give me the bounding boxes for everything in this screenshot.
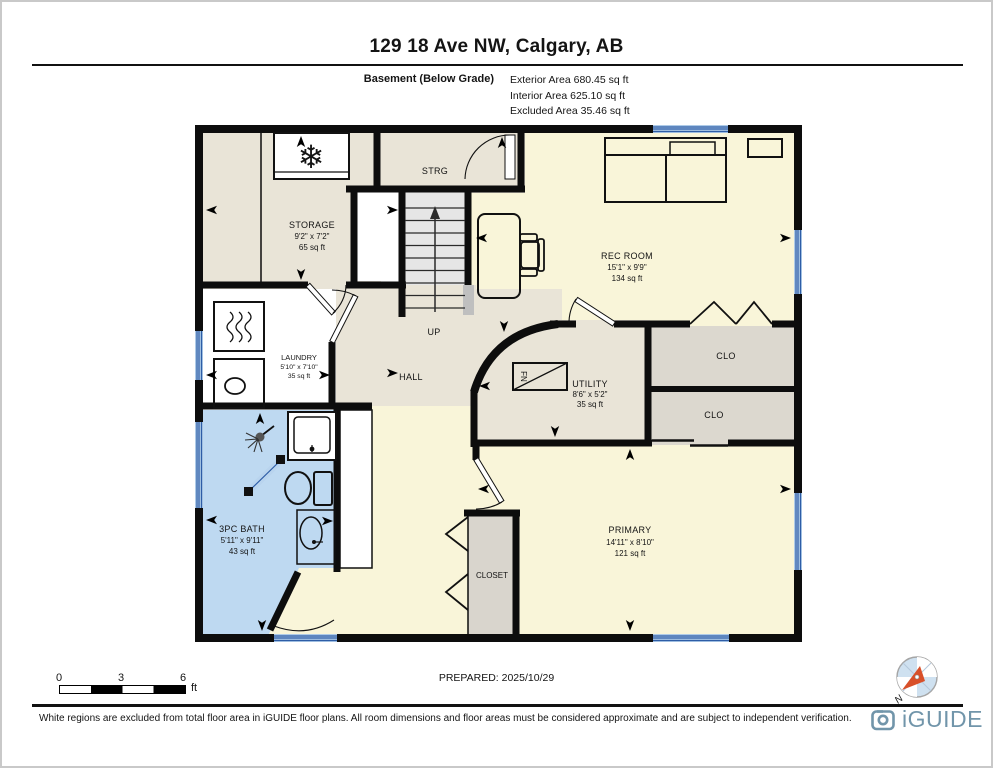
iguide-logo-text: iGUIDE (902, 706, 983, 733)
window-left-bath (195, 422, 203, 508)
prepared-date: PREPARED: 2025/10/29 (2, 672, 991, 684)
area-stats: Exterior Area 680.45 sq ft Interior Area… (510, 73, 630, 120)
room-label-clo-upper: CLO (716, 351, 735, 361)
stair-landing-block (463, 285, 474, 315)
footer-divider (32, 704, 963, 707)
furnace-label: FN (519, 371, 528, 382)
room-dims-primary: 14'11" x 8'10" (606, 538, 654, 547)
room-label-closet: CLOSET (476, 571, 508, 580)
room-label-hall: HALL (399, 372, 423, 382)
room-fills (199, 129, 798, 638)
floor-name: Basement (Below Grade) (364, 73, 494, 85)
room-label-strg: STRG (422, 166, 448, 176)
window-right-primary (794, 493, 802, 570)
room-dims-rec-room: 15'1" x 9'9" (607, 263, 647, 272)
room-dims-storage: 9'2" x 7'2" (295, 232, 330, 241)
page-title: 129 18 Ave NW, Calgary, AB (2, 36, 991, 58)
room-area-bath: 43 sq ft (229, 547, 256, 556)
room-area-utility: 35 sq ft (577, 400, 604, 409)
room-dims-laundry: 5'10" x 7'10" (280, 364, 318, 371)
freezer: ❄ (274, 133, 349, 179)
iguide-logo-icon (870, 708, 897, 732)
window-bottom-primary (653, 634, 729, 642)
disclaimer-text: White regions are excluded from total fl… (39, 713, 852, 724)
room-label-up: UP (427, 327, 440, 337)
header-divider (32, 64, 963, 66)
furnace: FN (513, 363, 567, 390)
room-area-rec-room: 134 sq ft (612, 274, 643, 283)
room-label-primary: PRIMARY (609, 525, 652, 535)
room-area-primary: 121 sq ft (615, 549, 646, 558)
room-dims-bath: 5'11" x 9'11" (221, 536, 264, 545)
room-area-storage: 65 sq ft (299, 243, 326, 252)
compass: N (889, 652, 945, 708)
room-label-storage: STORAGE (289, 220, 335, 230)
laundry-tub (288, 412, 336, 460)
interior-area: Interior Area 625.10 sq ft (510, 89, 630, 105)
room-label-rec-room: REC ROOM (601, 251, 653, 261)
excluded-area: Excluded Area 35.46 sq ft (510, 104, 630, 120)
exterior-area: Exterior Area 680.45 sq ft (510, 73, 630, 89)
window-bottom-vestibule (274, 634, 337, 642)
room-area-laundry: 35 sq ft (288, 373, 310, 380)
window-left-laundry (195, 331, 203, 380)
floor-plan-svg: ❄ (2, 2, 991, 766)
scale-bar-strip (59, 685, 186, 694)
floorplan-page: ❄ (0, 0, 993, 768)
iguide-logo: iGUIDE (870, 706, 983, 733)
room-dims-utility: 8'6" x 5'2" (573, 390, 608, 399)
room-label-clo-lower: CLO (704, 410, 723, 420)
window-right-rec (794, 230, 802, 294)
room-label-utility: UTILITY (572, 379, 608, 389)
window-top-rec (653, 125, 728, 133)
room-label-bath: 3PC BATH (219, 524, 265, 534)
room-label-laundry: LAUNDRY (281, 353, 317, 362)
